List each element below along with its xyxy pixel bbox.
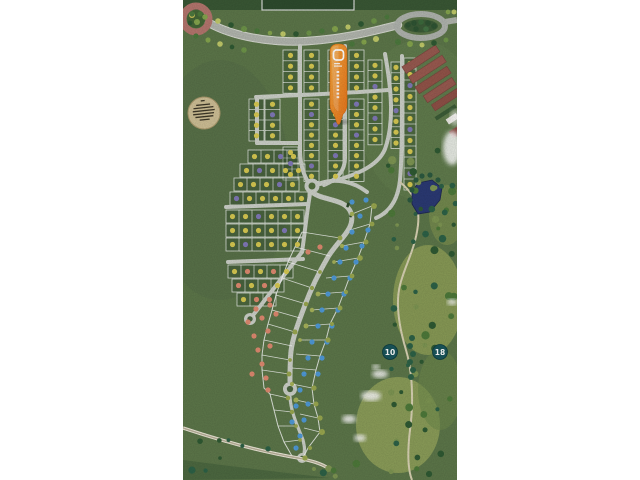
site-model-photo: 10 18: [0, 0, 640, 480]
photo-grain: [183, 0, 457, 480]
screenshot-root: 10 18: [0, 0, 640, 480]
